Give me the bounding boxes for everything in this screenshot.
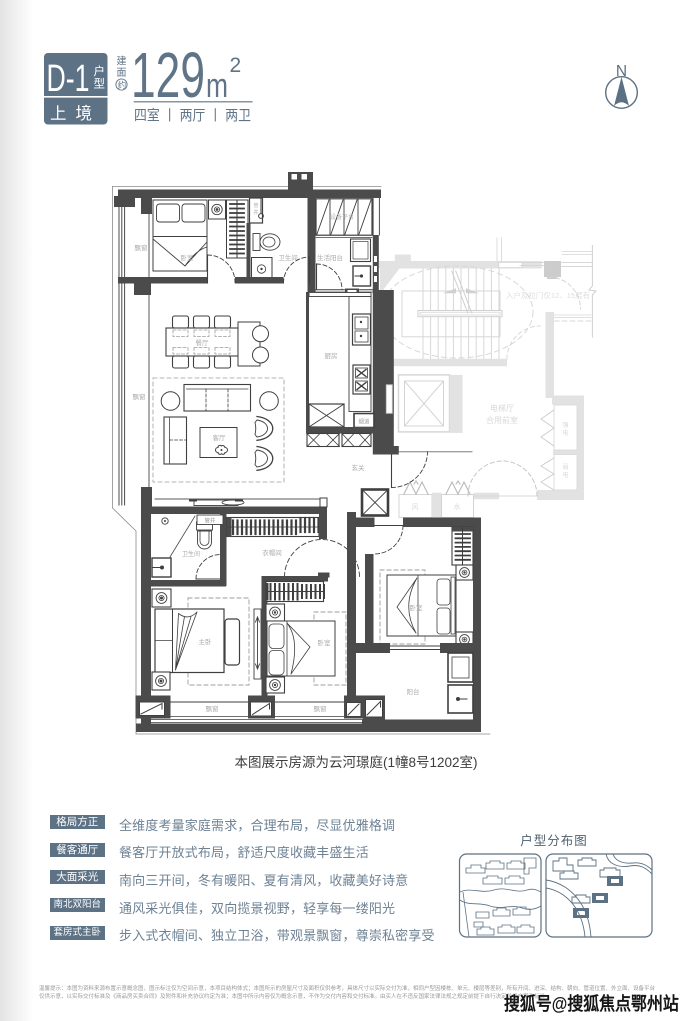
svg-text:卧室: 卧室 — [318, 638, 332, 647]
svg-text:2: 2 — [230, 54, 242, 77]
svg-text:合用前室: 合用前室 — [486, 415, 518, 425]
svg-text:生活阳台: 生活阳台 — [317, 253, 343, 262]
svg-text:主卧: 主卧 — [199, 637, 213, 646]
svg-text:面: 面 — [117, 68, 127, 79]
svg-text:设备平台: 设备平台 — [330, 213, 354, 221]
svg-text:型: 型 — [94, 77, 106, 91]
svg-text:管井: 管井 — [204, 517, 216, 525]
svg-text:电: 电 — [562, 429, 568, 437]
svg-text:建: 建 — [117, 55, 127, 68]
svg-text:电: 电 — [562, 471, 568, 479]
svg-text:管: 管 — [253, 202, 258, 209]
svg-text:D-1: D-1 — [47, 58, 90, 100]
svg-text:烟道: 烟道 — [358, 418, 370, 426]
svg-text:井: 井 — [253, 209, 258, 216]
svg-text:户型分布图: 户型分布图 — [520, 833, 588, 848]
svg-text:玄关: 玄关 — [352, 463, 366, 472]
svg-text:入户及拉门仅12、15层有: 入户及拉门仅12、15层有 — [506, 290, 591, 300]
svg-text:餐厅: 餐厅 — [196, 338, 210, 347]
svg-text:客厅: 客厅 — [213, 433, 227, 442]
svg-text:电梯厅: 电梯厅 — [490, 403, 514, 413]
svg-text:厨房: 厨房 — [325, 351, 338, 360]
svg-text:弱: 弱 — [562, 464, 568, 471]
svg-text:强: 强 — [562, 422, 568, 429]
svg-text:飘窗: 飘窗 — [314, 704, 327, 713]
svg-text:卧室: 卧室 — [181, 253, 195, 262]
svg-text:约: 约 — [118, 80, 127, 90]
svg-text:飘窗: 飘窗 — [135, 243, 148, 252]
svg-text:卧室: 卧室 — [410, 603, 424, 612]
svg-text:四室 丨 两厅 丨 两卫: 四室 丨 两厅 丨 两卫 — [134, 108, 251, 125]
svg-text:水: 水 — [454, 502, 461, 511]
svg-text:卫生间: 卫生间 — [182, 550, 200, 558]
svg-text:户: 户 — [94, 64, 106, 78]
svg-text:飘窗: 飘窗 — [133, 392, 146, 401]
svg-text:129: 129 — [131, 45, 205, 111]
svg-text:飘窗: 飘窗 — [206, 704, 219, 713]
svg-text:风: 风 — [412, 503, 419, 511]
svg-text:阳台: 阳台 — [407, 687, 420, 696]
svg-text:卫生间: 卫生间 — [278, 253, 298, 262]
svg-text:m: m — [206, 67, 228, 105]
svg-text:衣帽间: 衣帽间 — [262, 548, 282, 557]
svg-text:上境: 上境 — [50, 104, 101, 123]
